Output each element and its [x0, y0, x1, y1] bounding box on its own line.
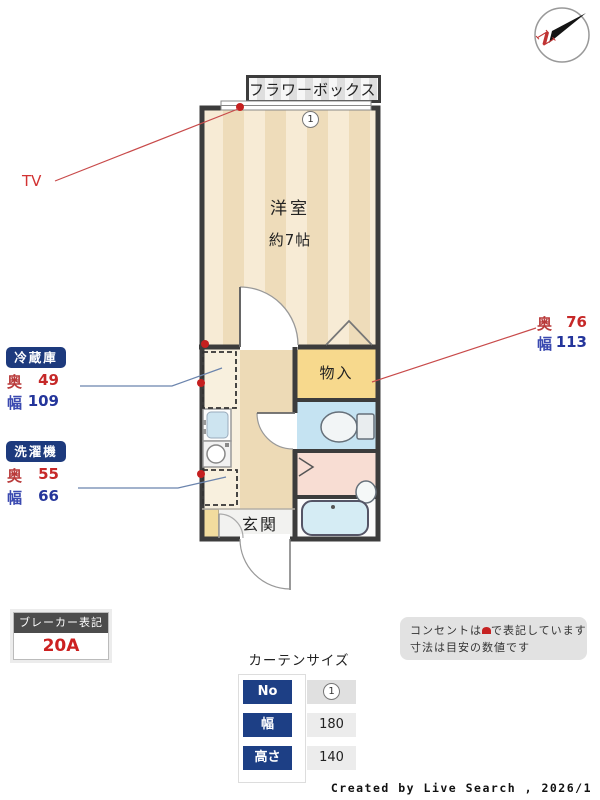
breaker-box: ブレーカー表記 20A	[13, 612, 109, 660]
sink-knob-icon	[203, 420, 206, 425]
curtain-row-height-label: 高さ	[243, 746, 292, 770]
curtain-row-no-label: No	[243, 680, 292, 704]
washer-badge: 洗濯機	[6, 441, 66, 462]
depth-value: 49	[38, 371, 59, 392]
legend-note-box: コンセントはで表記しています 寸法は目安の数値です	[400, 617, 587, 660]
depth-value: 76	[566, 313, 587, 334]
refrigerator-width-row: 幅 109	[7, 392, 59, 413]
outlet-dot	[201, 340, 209, 348]
main-room-name: 洋室	[202, 194, 378, 219]
depth-value: 55	[38, 465, 59, 486]
washer-depth-row: 奥 55	[7, 465, 59, 486]
width-label: 幅	[7, 392, 22, 413]
main-room-size: 約7帖	[202, 229, 378, 250]
front-door-opening	[240, 534, 290, 543]
bathtub-icon	[302, 501, 368, 535]
closet-depth-row: 奥 76	[537, 313, 587, 334]
toilet-tank-icon	[357, 414, 374, 439]
stove-switch-icon	[225, 443, 229, 447]
outlet-symbol-icon	[482, 627, 491, 634]
bathtub-drain-icon	[331, 505, 335, 509]
tv-leader-line	[55, 109, 238, 181]
legend-note-line1-pre: コンセントは	[410, 624, 482, 637]
refrigerator-badge: 冷蔵庫	[6, 347, 66, 368]
width-label: 幅	[7, 487, 22, 508]
floor-plan-page: N フラワーボックス 1 TV 洋室 約7帖 物入 玄関 冷蔵庫 奥 49 幅 …	[0, 0, 600, 800]
closet-width-row: 幅 113	[537, 333, 587, 354]
front-door-arc	[240, 539, 290, 589]
width-value: 109	[28, 392, 59, 413]
curtain-size-title: カーテンサイズ	[240, 649, 358, 669]
washroom-folding-door-mark	[299, 458, 313, 476]
kitchen-sink-basin	[207, 412, 228, 438]
closet-dims-leader-line	[372, 328, 536, 382]
stove-burner-icon	[207, 445, 225, 463]
toilet-bowl-icon	[321, 412, 357, 442]
wash-basin-icon	[356, 481, 376, 503]
curtain-row-height-value: 140	[307, 746, 356, 770]
legend-note-line2: 寸法は目安の数値です	[410, 639, 587, 656]
breaker-value: 20A	[14, 633, 108, 659]
washer-outlet-dot	[197, 470, 205, 478]
closet-label: 物入	[297, 362, 376, 383]
refrigerator-depth-row: 奥 49	[7, 371, 59, 392]
curtain-row-width-value: 180	[307, 713, 356, 737]
entrance-label: 玄関	[230, 511, 290, 535]
legend-note-line1: コンセントはで表記しています	[410, 622, 587, 639]
curtain-row-width-label: 幅	[243, 713, 292, 737]
washer-width-row: 幅 66	[7, 487, 59, 508]
flower-box-label: フラワーボックス	[249, 79, 375, 100]
width-value: 66	[38, 487, 59, 508]
depth-label: 奥	[537, 313, 552, 334]
toilet-door-swing	[257, 413, 297, 449]
credit-text: Created by Live Search , 2026/1	[331, 781, 592, 795]
breaker-title: ブレーカー表記	[14, 613, 108, 633]
refrigerator-space-outline	[203, 352, 236, 408]
curtain-row-no-value: 1	[307, 680, 356, 704]
depth-label: 奥	[7, 465, 22, 486]
legend-note-line1-post: で表記しています	[491, 624, 587, 637]
tv-label: TV	[22, 172, 41, 190]
sink-knob-icon	[203, 429, 206, 434]
main-room-door-swing	[240, 287, 298, 350]
curtain-number-badge: 1	[323, 683, 340, 700]
refrigerator-outlet-dot	[197, 379, 205, 387]
washer-space-outline	[203, 470, 237, 505]
window-number-badge: 1	[302, 111, 319, 128]
width-label: 幅	[537, 333, 552, 354]
depth-label: 奥	[7, 371, 22, 392]
width-value: 113	[556, 333, 587, 354]
corner-triangle-mark	[326, 321, 372, 345]
